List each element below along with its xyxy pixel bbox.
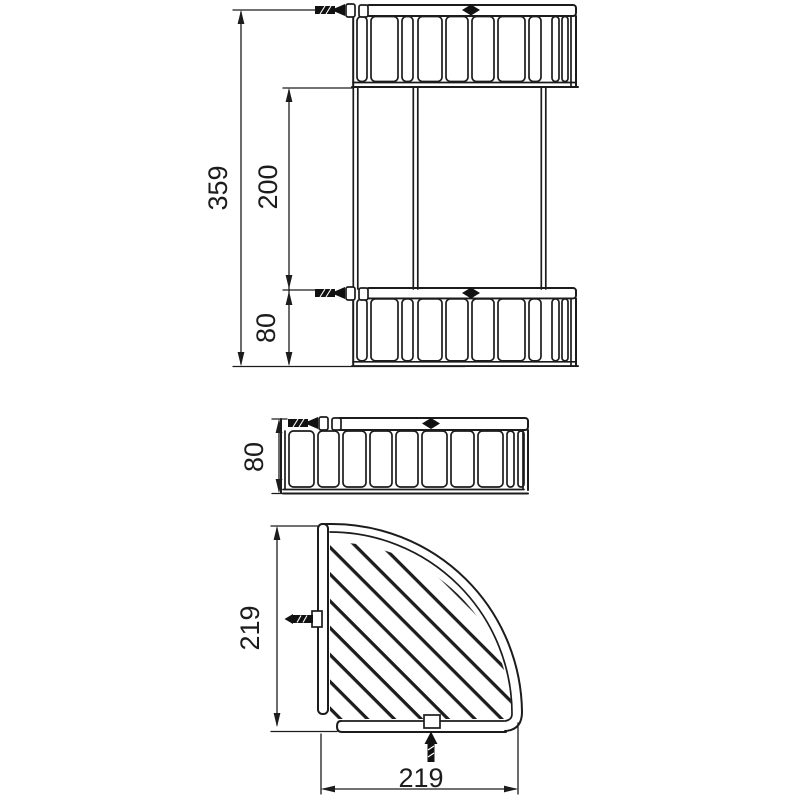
technical-drawing-page: 359 200 80 [0,0,800,800]
dim-label-359: 359 [203,165,233,210]
dim-label-219-horizontal: 219 [398,763,443,793]
corner-basket-dimension-drawing: 359 200 80 [0,0,800,800]
dim-label-219-vertical: 219 [235,605,265,650]
dim-label-80-side: 80 [239,442,269,472]
dim-label-200: 200 [253,164,283,209]
dim-label-80-front: 80 [251,313,281,343]
basket-slats [289,431,524,487]
